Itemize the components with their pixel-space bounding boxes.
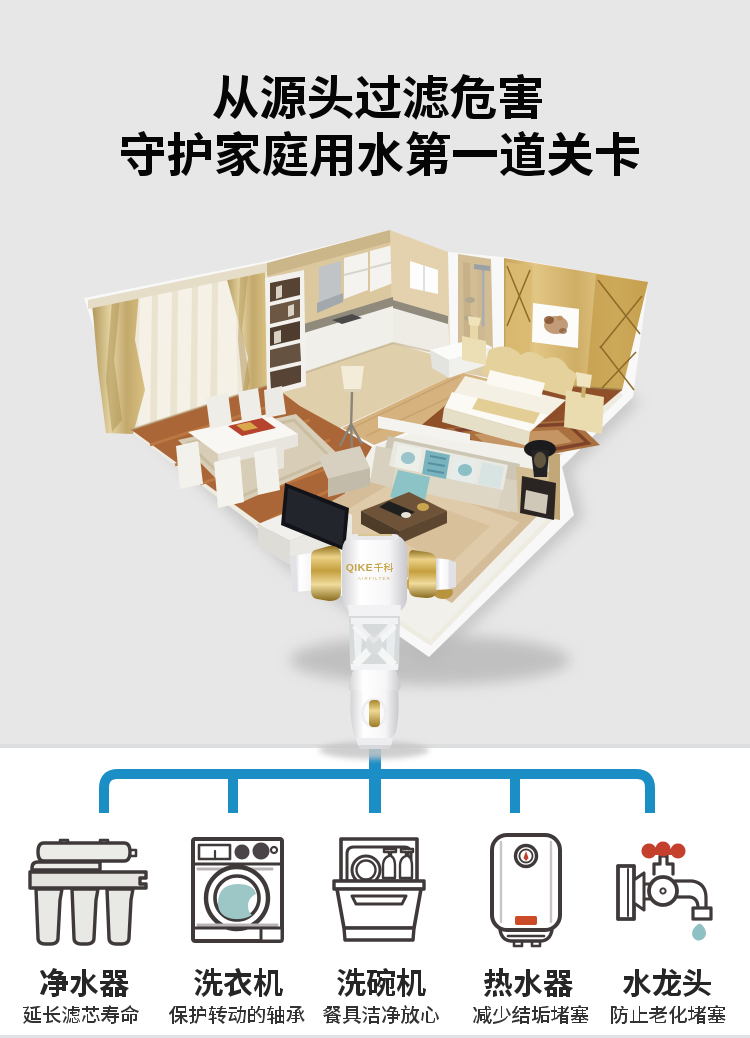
svg-text:QIKE: QIKE <box>346 562 373 574</box>
svg-text:A I R F I L T E R: A I R F I L T E R <box>358 576 390 581</box>
